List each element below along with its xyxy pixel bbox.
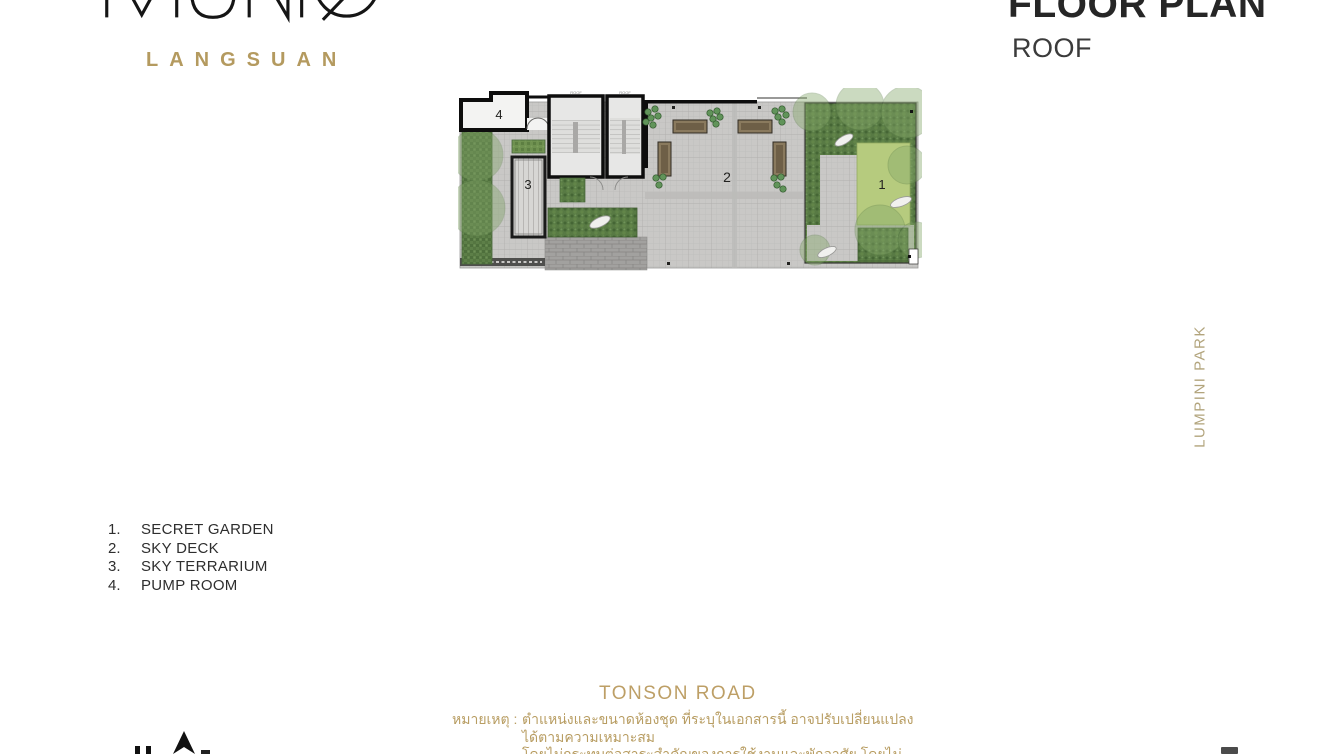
- area-label-3: 3: [524, 177, 531, 192]
- plan-tree: [458, 129, 503, 181]
- note-line: ตำแหน่งและขนาดห้องชุด ที่ระบุในเอกสารนี้…: [522, 711, 922, 746]
- legend-number: 1.: [108, 521, 138, 538]
- legend: 1. SECRET GARDEN 2. SKY DECK 3. SKY TERR…: [108, 520, 274, 595]
- plan-planter-small: [560, 178, 585, 202]
- lumpini-park-label: LUMPINI PARK: [1192, 322, 1209, 452]
- header-title-clip: FLOOR PLAN: [1008, 0, 1308, 27]
- legend-number: 3.: [108, 558, 138, 575]
- logo-letter-q: [315, 0, 377, 16]
- legend-label: PUMP ROOM: [141, 577, 238, 594]
- logo-letter-n: [249, 0, 288, 17]
- stairwell-1-label: ROOF: [570, 90, 582, 95]
- plan-brick-walk: [545, 237, 647, 270]
- tonson-road-label: TONSON ROAD: [599, 683, 757, 705]
- plan-terrarium-planter: [512, 140, 545, 153]
- plan-bench: [773, 142, 786, 176]
- brochure-page: LANGSUAN FLOOR PLAN ROOF: [0, 0, 1342, 754]
- plan-bench: [658, 142, 671, 176]
- floor-name: ROOF: [1012, 33, 1092, 64]
- legend-item-secret-garden: 1. SECRET GARDEN: [108, 520, 274, 539]
- floor-plan: ROOF ROOF: [458, 88, 922, 272]
- plan-pump-room: [461, 93, 527, 130]
- plan-terrarium-deck: [512, 157, 545, 237]
- note-prefix: หมายเหตุ :: [452, 711, 520, 754]
- area-label-4: 4: [495, 107, 502, 122]
- legend-label: SKY DECK: [141, 540, 219, 557]
- logo-letter-u: [192, 0, 234, 17]
- plan-secret-garden: [793, 88, 922, 265]
- corner-mark: [1221, 747, 1238, 754]
- legend-number: 4.: [108, 577, 138, 594]
- plan-pavement-band-v: [732, 103, 737, 268]
- area-label-1: 1: [878, 177, 885, 192]
- legend-item-pump-room: 4. PUMP ROOM: [108, 576, 274, 595]
- legend-item-sky-deck: 2. SKY DECK: [108, 539, 274, 558]
- legend-label: SKY TERRARIUM: [141, 558, 268, 575]
- plan-wall-top: [645, 100, 757, 104]
- legend-label: SECRET GARDEN: [141, 521, 274, 538]
- disclaimer-note: หมายเหตุ : ตำแหน่งและขนาดห้องชุด ที่ระบุ…: [452, 711, 922, 754]
- plan-bench: [673, 120, 707, 133]
- note-lines: ตำแหน่งและขนาดห้องชุด ที่ระบุในเอกสารนี้…: [522, 711, 922, 754]
- floor-plan-drawing: ROOF ROOF: [458, 88, 922, 272]
- legend-item-sky-terrarium: 3. SKY TERRARIUM: [108, 557, 274, 576]
- plan-pavement-band-h: [645, 192, 805, 199]
- north-arrow-icon: [125, 728, 235, 754]
- note-line: โดยไม่กระทบต่อสาระสำคัญของการใช้งานและพั…: [522, 746, 922, 754]
- logo-letter-m: [107, 0, 177, 17]
- stairwell-2-label: ROOF: [619, 90, 631, 95]
- page-title: FLOOR PLAN: [1008, 0, 1308, 27]
- brand-location-label: LANGSUAN: [146, 49, 347, 72]
- plan-bench: [738, 120, 772, 133]
- area-label-2: 2: [723, 169, 731, 185]
- legend-number: 2.: [108, 540, 138, 557]
- muniq-logo: [103, 0, 381, 42]
